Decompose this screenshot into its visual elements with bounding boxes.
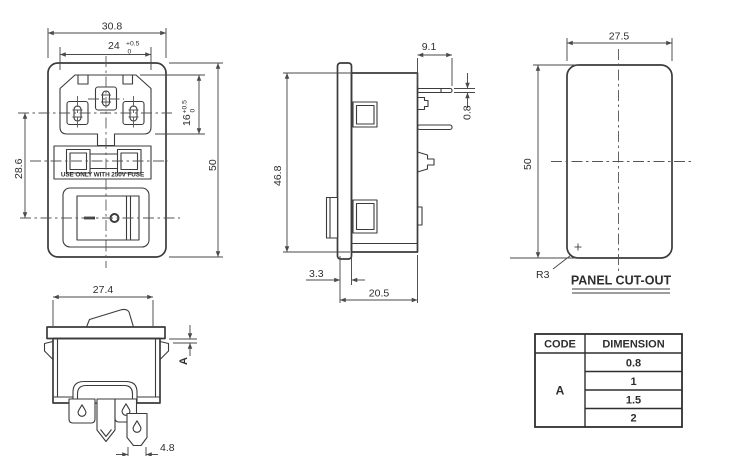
table-dimension-row-4: 2 — [630, 413, 636, 425]
table-code-value: A — [556, 384, 565, 398]
dim-pin-length-label: 9.1 — [422, 41, 437, 53]
dim-recess-width-tol-upper: +0.5 — [126, 41, 140, 48]
dimension-table: CODE DIMENSION A 0.8 1 1.5 2 — [535, 334, 682, 427]
dim-cutout-height-label: 50 — [522, 158, 534, 170]
dim-pin-length: 9.1 — [418, 41, 453, 86]
dim-terminal-width: 4.8 — [116, 442, 175, 456]
dim-mount-depth-label: 20.5 — [369, 288, 390, 300]
table-dimension-row-3: 1.5 — [626, 395, 641, 407]
snap-latch — [418, 152, 435, 172]
corner-radius-label: R3 — [536, 269, 550, 281]
terminals — [69, 399, 147, 446]
terminal-tab-4 — [127, 414, 147, 446]
dim-switch-width-label: 27.4 — [93, 284, 114, 296]
dim-center-spacing: 28.6 — [13, 113, 25, 218]
panel-cutout-view: 27.5 50 R3 PANEL CUT-OUT — [510, 31, 691, 294]
dim-overall-width: 30.8 — [48, 21, 166, 59]
switch-view: 27.4 A 4.8 — [45, 284, 198, 456]
terminal-pin-middle — [418, 125, 453, 130]
dim-recess-width-label: 24 — [108, 40, 120, 52]
technical-drawing-page: USE ONLY WITH 250V FUSE 30.8 — [0, 0, 739, 456]
cutout-caption: PANEL CUT-OUT — [571, 274, 672, 288]
dim-recess-height-tol-lower: 0 — [190, 109, 197, 113]
dim-center-spacing-label: 28.6 — [13, 158, 25, 179]
snap-clip-left — [45, 342, 54, 360]
rocker-actuator — [87, 309, 134, 327]
rear-clip-upper — [418, 98, 429, 110]
dim-overall-width-label: 30.8 — [102, 21, 123, 33]
dim-overall-height: 50 — [169, 63, 223, 257]
table-dimension-row-1: 0.8 — [626, 358, 641, 370]
dim-overall-height-label: 50 — [207, 159, 219, 171]
terminal-tab-2 — [97, 399, 115, 442]
terminal-pin-top — [418, 89, 453, 93]
snap-clip-right — [160, 342, 169, 360]
dim-pin-thickness: 0.8 — [454, 73, 475, 120]
dim-recess-width-tol-lower: 0 — [128, 49, 132, 56]
dim-cutout-width-label: 27.5 — [609, 31, 630, 43]
table-header-code: CODE — [544, 339, 576, 351]
side-body-outline — [352, 73, 418, 252]
dim-body-height-label: 46.8 — [272, 165, 284, 186]
dim-terminal-width-label: 4.8 — [160, 442, 175, 454]
dim-cutout-width: 27.5 — [567, 31, 672, 62]
dim-cutout-height: 50 — [510, 65, 580, 258]
terminal-tab-1 — [69, 399, 95, 423]
dim-recess-height-label: 16 — [181, 114, 193, 126]
fuse-warning-label: USE ONLY WITH 250V FUSE — [61, 172, 145, 179]
dim-recess-height-tol-upper: +0.5 — [182, 100, 189, 114]
side-view: 9.1 0.8 46.8 3.3 — [272, 41, 475, 303]
dim-flange-thickness-label: 3.3 — [309, 268, 324, 280]
front-view: USE ONLY WITH 250V FUSE 30.8 — [13, 21, 223, 269]
table-dimension-row-2: 1 — [630, 376, 636, 388]
inlet-body-outline — [48, 63, 166, 257]
dim-flange-thickness: 3.3 — [306, 256, 365, 303]
rocker-protrusion-side — [327, 198, 338, 239]
dim-pin-thickness-label: 0.8 — [462, 105, 474, 120]
dim-panel-thickness: A — [169, 325, 197, 365]
corner-radius-callout: R3 — [536, 256, 571, 282]
table-header-dimension: DIMENSION — [602, 339, 664, 351]
drawing-canvas: USE ONLY WITH 250V FUSE 30.8 — [0, 0, 739, 456]
switch-flange — [47, 327, 165, 339]
dim-panel-thickness-label: A — [178, 357, 190, 365]
mounting-flange — [338, 63, 352, 259]
